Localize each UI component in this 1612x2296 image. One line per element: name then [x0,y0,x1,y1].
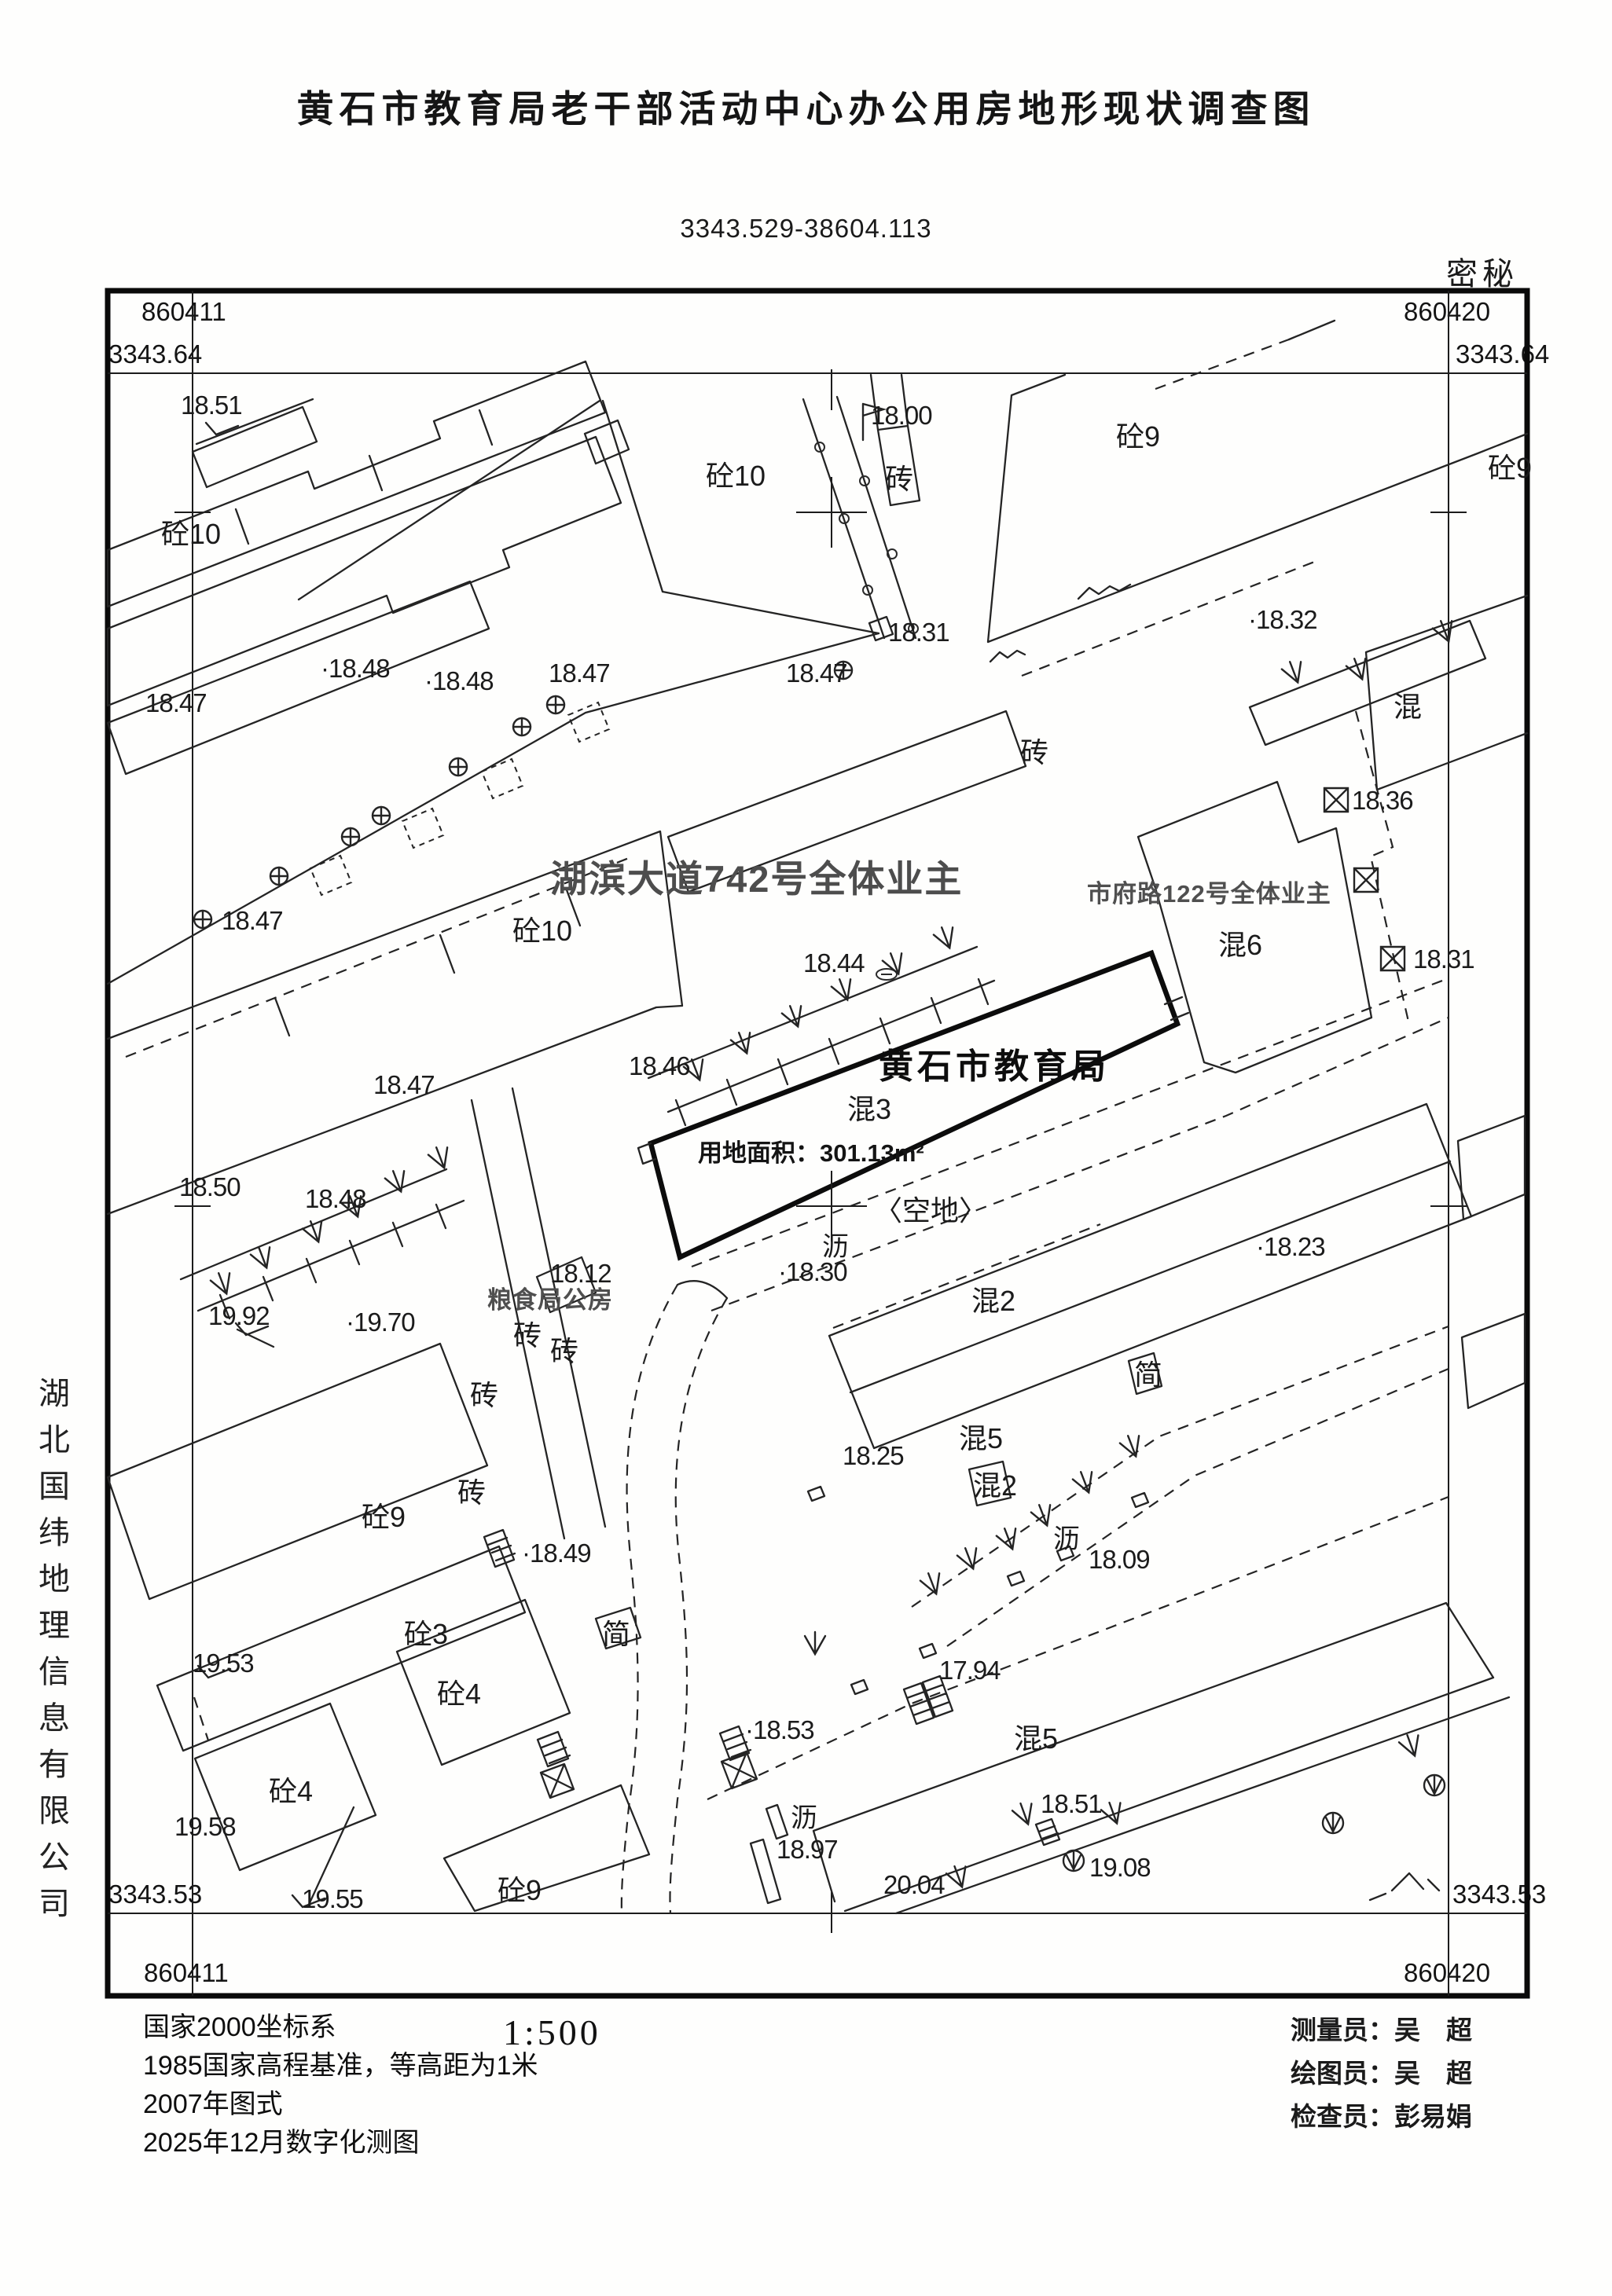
map-label: 18.48 [305,1184,366,1213]
map-label: 18.47 [786,658,847,688]
map-linework [108,321,1527,1913]
gate-icon [805,1632,825,1654]
map-label: 18.31 [1413,944,1474,974]
cross-icon [796,477,867,548]
map-labels: 18.5118.47·18.48·18.4818.4718.4718.4718.… [145,391,1532,1913]
gate-icon [881,950,908,977]
map-label: 18.97 [777,1835,838,1864]
map-label: 混5 [959,1422,1003,1454]
map-label: 混2 [971,1285,1015,1317]
map-label: ·18.53 [745,1715,814,1744]
lamp-icon [547,696,564,713]
map-notes: 国家2000坐标系 1985国家高程基准，等高距为1米 2007年图式 2025… [143,2008,538,2162]
gate-icon [1100,1799,1126,1827]
map-label: 湖滨大道742号全体业主 [550,858,963,900]
map-label: 用地面积：301.13m² [698,1139,924,1167]
map-label: 混6 [1218,929,1262,961]
map-label: 砖 [513,1319,542,1352]
map-label: 沥 [791,1803,817,1833]
map-label: ·18.49 [522,1539,591,1568]
map-label: ·18.23 [1256,1232,1325,1261]
well-icon [1381,947,1405,970]
map-label: 18.47 [222,906,283,935]
tree-icon [1323,1813,1343,1833]
credits: 测量员：吴 超 绘图员：吴 超 检查员：彭易娟 [1291,2008,1472,2138]
map-label: 19.58 [174,1812,236,1841]
building-outlines-top-right [988,375,1527,790]
credit-line: 绘图员：吴 超 [1291,2052,1472,2095]
lamp-icon [270,867,288,885]
lamp-icon [450,758,467,776]
map-label: 砼9 [362,1501,406,1533]
gate-icon [1011,1800,1037,1828]
map-label: ·18.32 [1248,605,1317,634]
map-label: 18.51 [1041,1789,1102,1818]
lamp-icon [513,718,531,735]
note-line: 1985国家高程基准，等高距为1米 [143,2047,538,2085]
map-label: 砼10 [706,460,766,492]
map-label: 18.36 [1352,786,1413,815]
map-label: 砖 [457,1476,486,1509]
gate-icon [384,1168,410,1195]
lamp-icon [194,911,211,928]
building-band-right [829,1104,1471,1506]
gate-icon [1280,658,1307,686]
stair-symbols [484,1530,1439,1903]
credit-line: 测量员：吴 超 [1291,2008,1472,2052]
map-label: 市府路122号全体业主 [1087,880,1331,908]
map-label: 砼3 [404,1618,448,1650]
map-label: 粮食局公房 [487,1286,613,1314]
map-label: 18.50 [179,1172,241,1201]
map-label: 19.92 [208,1301,270,1330]
curved-lane [622,1285,727,1913]
gate-icon [956,1545,982,1572]
tree-icon [1063,1850,1084,1871]
map-label: 混 [1394,691,1422,723]
map-label: 砼9 [1488,452,1532,484]
map-label: 18.51 [181,391,242,420]
map-label: 18.44 [803,948,865,977]
map-label: 简 [1134,1359,1162,1391]
map-label: 砼4 [269,1775,313,1807]
map-label: 17.94 [939,1656,1001,1685]
lamp-icon [373,807,390,824]
map-label: 混3 [847,1093,891,1125]
survey-map-sheet: 黄石市教育局老干部活动中心办公用房地形现状调查图 3343.529-38604.… [0,0,1612,2296]
map-label: 简 [602,1618,630,1650]
map-label: 18.31 [888,618,949,647]
note-line: 2007年图式 [143,2085,538,2124]
note-line: 2025年12月数字化测图 [143,2124,538,2162]
map-label: 19.55 [302,1884,363,1913]
gate-icon [249,1244,276,1271]
map-label: 砖 [885,463,913,495]
map-label: 18.47 [549,658,610,688]
building-outline-hun6 [1138,782,1525,1408]
gate-icon [427,1144,453,1172]
map-label: 沥 [822,1232,849,1262]
gate-icon [209,1270,236,1297]
map-label: ·18.48 [424,666,494,695]
lamp-icon [342,828,359,845]
map-label: 18.12 [550,1259,611,1288]
map-label: 19.53 [193,1649,254,1678]
map-label: 20.04 [883,1870,945,1899]
gate-icon [1071,1469,1098,1496]
gate-icon [729,1029,756,1057]
map-label: 18.09 [1089,1545,1150,1574]
map-label: 黄石市教育局 [879,1047,1110,1086]
map-label: 混5 [1014,1722,1058,1755]
map-label: 砖 [1020,736,1048,768]
map-label: 砼4 [437,1678,481,1710]
map-canvas: 18.5118.47·18.48·18.4818.4718.4718.4718.… [0,0,1612,2296]
map-label: ·19.70 [346,1308,415,1337]
map-label: 混2 [973,1469,1017,1502]
gate-icon [995,1525,1022,1553]
map-label: 砖 [470,1379,498,1411]
map-label: 19.08 [1089,1853,1151,1882]
gate-icon [301,1218,328,1245]
map-label: ·18.48 [321,654,390,683]
map-label: 18.25 [843,1441,904,1470]
gate-icon [932,924,959,952]
well-icon [1324,788,1348,812]
map-label: 砖 [550,1335,578,1367]
map-label: 〈空地〉 [874,1194,987,1227]
map-label: 砼9 [498,1874,542,1906]
cross-icon [796,1171,867,1242]
map-label: 18.47 [145,688,207,717]
map-label: 18.46 [629,1051,690,1080]
well-icon [1354,868,1378,892]
tree-icon [1424,1775,1445,1795]
map-label: 砼10 [512,915,572,947]
map-label: 砼9 [1116,420,1160,453]
map-label: 砼10 [161,518,221,550]
map-scale: 1:500 [503,2012,601,2053]
map-label: 18.00 [871,401,932,430]
credit-line: 检查员：彭易娟 [1291,2095,1472,2138]
tick-icon [206,423,238,435]
building-row-hubin [108,711,1026,1347]
map-label: 沥 [1053,1524,1080,1554]
building-band-bottom [813,1603,1509,1913]
note-line: 国家2000坐标系 [143,2008,538,2047]
map-label: 18.47 [373,1070,435,1099]
